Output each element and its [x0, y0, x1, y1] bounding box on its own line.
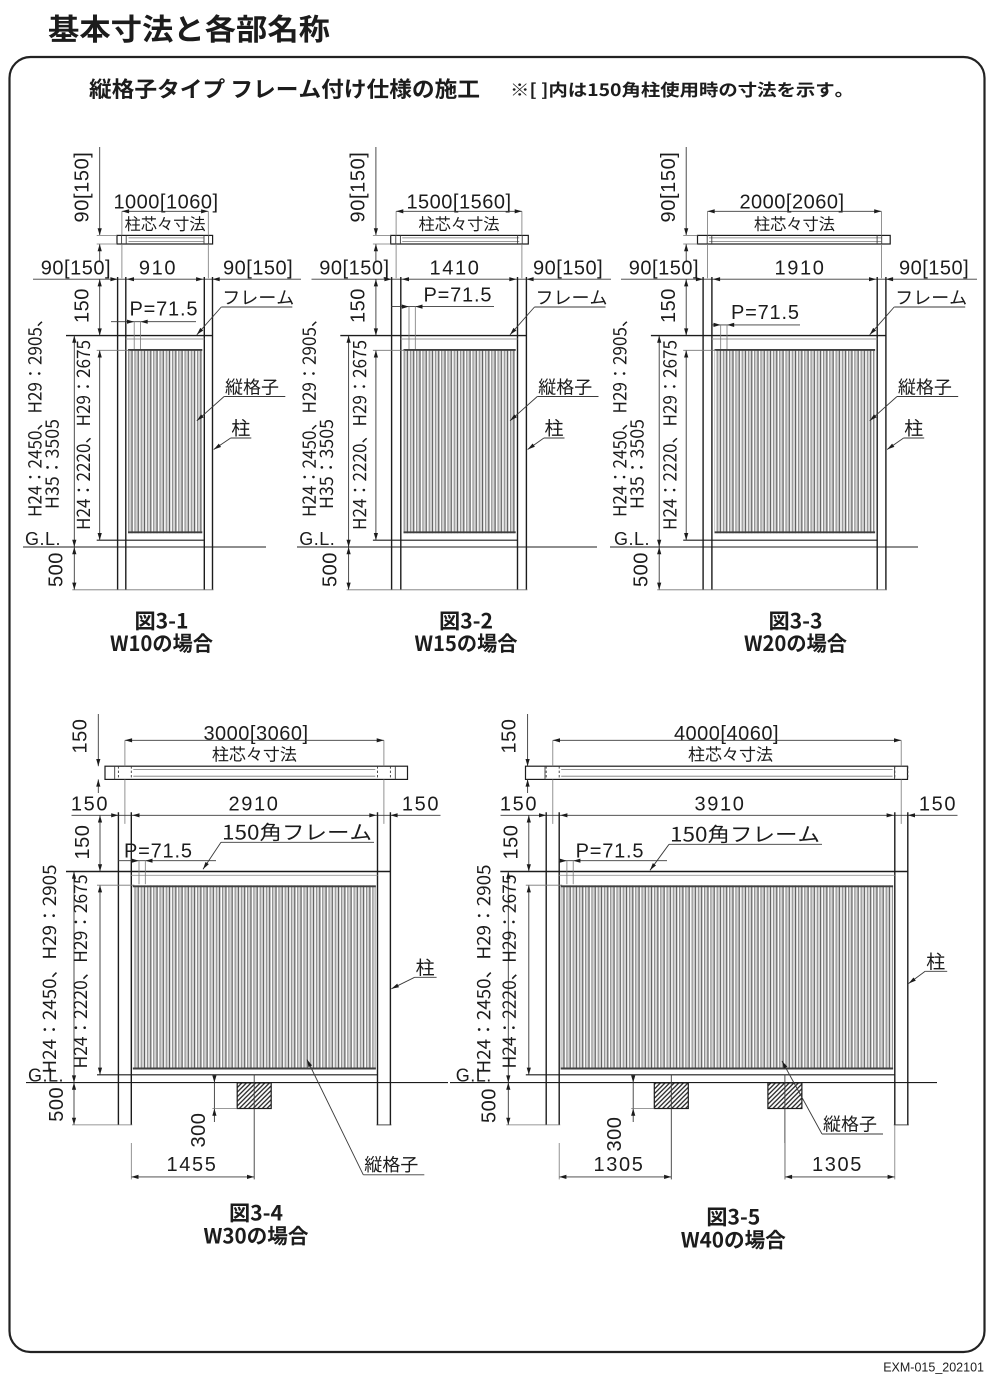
svg-text:1500[1560]: 1500[1560]: [406, 192, 511, 214]
svg-text:150: 150: [348, 288, 370, 323]
svg-text:90[150]: 90[150]: [658, 152, 680, 223]
svg-text:300: 300: [188, 1113, 210, 1148]
svg-text:3910: 3910: [695, 794, 746, 816]
svg-text:500: 500: [46, 1087, 68, 1122]
svg-text:2910: 2910: [229, 794, 280, 816]
svg-text:90[150]: 90[150]: [319, 258, 389, 280]
svg-text:2000[2060]: 2000[2060]: [739, 192, 844, 214]
svg-text:G.L.: G.L.: [299, 529, 335, 549]
svg-text:P=71.5: P=71.5: [130, 299, 199, 321]
svg-text:150: 150: [919, 794, 957, 816]
svg-text:G.L.: G.L.: [614, 529, 650, 549]
svg-text:4000[4060]: 4000[4060]: [674, 723, 779, 745]
svg-text:500: 500: [479, 1088, 501, 1123]
svg-text:90[150]: 90[150]: [72, 152, 94, 223]
svg-text:3000[3060]: 3000[3060]: [203, 723, 308, 745]
svg-text:1455: 1455: [167, 1154, 218, 1176]
svg-text:300: 300: [604, 1117, 626, 1152]
svg-text:90[150]: 90[150]: [533, 258, 603, 280]
svg-text:150: 150: [402, 794, 440, 816]
svg-text:90[150]: 90[150]: [629, 258, 699, 280]
svg-text:150: 150: [70, 719, 92, 754]
svg-text:500: 500: [630, 552, 652, 587]
svg-text:EXM-015_202101: EXM-015_202101: [883, 1361, 984, 1375]
svg-text:150: 150: [500, 794, 538, 816]
svg-text:910: 910: [139, 258, 177, 280]
svg-text:P=71.5: P=71.5: [124, 841, 193, 863]
svg-text:150: 150: [500, 825, 522, 860]
svg-text:1410: 1410: [430, 258, 481, 280]
svg-text:1910: 1910: [775, 258, 826, 280]
svg-text:150: 150: [71, 794, 109, 816]
svg-text:G.L.: G.L.: [25, 529, 61, 549]
svg-text:500: 500: [320, 552, 342, 587]
svg-text:1305: 1305: [812, 1154, 863, 1176]
svg-text:150: 150: [72, 825, 94, 860]
svg-text:90[150]: 90[150]: [899, 258, 969, 280]
svg-text:90[150]: 90[150]: [41, 258, 111, 280]
svg-text:P=71.5: P=71.5: [424, 285, 493, 307]
svg-text:500: 500: [45, 552, 67, 587]
svg-text:150: 150: [658, 288, 680, 323]
svg-text:P=71.5: P=71.5: [731, 302, 800, 324]
svg-text:90[150]: 90[150]: [223, 258, 293, 280]
svg-text:150: 150: [499, 719, 521, 754]
svg-text:150: 150: [72, 288, 94, 323]
svg-text:1305: 1305: [594, 1154, 645, 1176]
svg-text:P=71.5: P=71.5: [576, 841, 645, 863]
svg-text:90[150]: 90[150]: [348, 152, 370, 223]
